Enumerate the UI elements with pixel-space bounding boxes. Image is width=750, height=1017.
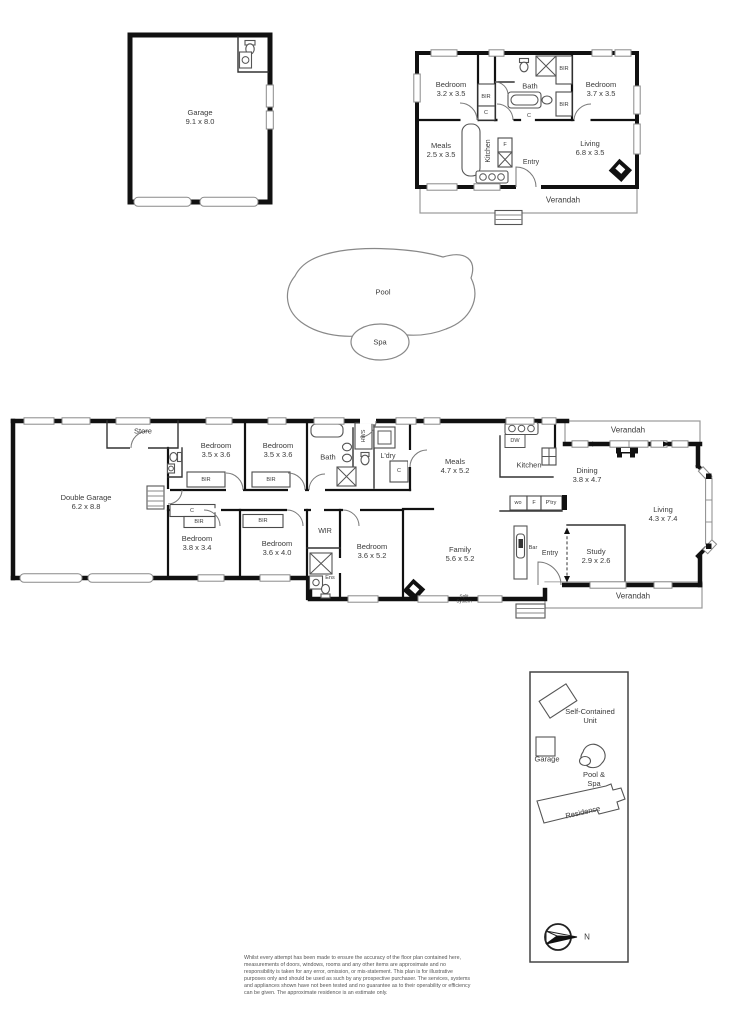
wir-label: WIR xyxy=(318,528,332,536)
room-dims: 9.1 x 8.0 xyxy=(186,118,215,127)
bedroom2-label: Bedroom 3.5 x 3.6 xyxy=(263,442,293,460)
room-dims: 6.2 x 8.8 xyxy=(61,503,112,512)
room-dims: 5.6 x 5.2 xyxy=(446,555,475,564)
hws-label: HWS xyxy=(360,430,366,443)
unit-meals-label: Meals 2.5 x 3.5 xyxy=(427,142,456,160)
fridge-label: F xyxy=(532,500,535,506)
bathtub-icon xyxy=(508,92,541,108)
entry-label: Entry xyxy=(542,550,558,558)
room-dims: 3.7 x 3.5 xyxy=(586,90,616,99)
unit-verandah xyxy=(420,187,637,213)
bar-label: Bar xyxy=(529,545,538,551)
toilet-icon xyxy=(321,594,330,598)
meals-label: Meals 4.7 x 5.2 xyxy=(441,458,470,476)
pool-label: Pool xyxy=(375,289,390,298)
unit-bedroom2-label: Bedroom 3.7 x 3.5 xyxy=(586,81,616,99)
residence-plan xyxy=(13,418,717,618)
ensuite-label: Ens xyxy=(325,575,334,581)
bedroom1-label: Bedroom 3.5 x 3.6 xyxy=(201,442,231,460)
basin-icon xyxy=(343,443,352,451)
room-dims: 2.5 x 3.5 xyxy=(427,151,456,160)
garage-door xyxy=(134,197,191,206)
laundry-label: L'dry xyxy=(381,453,396,461)
study-label: Study 2.9 x 2.6 xyxy=(582,548,611,566)
verandah-top-label: Verandah xyxy=(611,425,645,434)
split-system-label: Split System xyxy=(455,594,473,605)
unit-entry-label: Entry xyxy=(523,159,539,167)
bath-label: Bath xyxy=(320,454,335,463)
laundry-trough xyxy=(374,427,395,448)
key-garage-label: Garage xyxy=(534,756,559,765)
bathtub-icon xyxy=(311,424,343,437)
basin-icon xyxy=(240,52,252,68)
fireplace-icon xyxy=(616,446,638,458)
unit-bir-label: BIR xyxy=(559,102,568,108)
family-label: Family 5.6 x 5.2 xyxy=(446,546,475,564)
basin-icon xyxy=(343,454,352,462)
verandah-bottom-label: Verandah xyxy=(616,591,650,600)
bir-label: BIR xyxy=(201,476,210,482)
room-dims: 3.8 x 3.4 xyxy=(182,544,212,553)
room-dims: 4.3 x 7.4 xyxy=(649,515,678,524)
unit-bir-label: BIR xyxy=(559,66,568,72)
unit-verandah-label: Verandah xyxy=(546,195,580,204)
unit-living-label: Living 6.8 x 3.5 xyxy=(576,140,605,158)
room-dims: 3.2 x 3.5 xyxy=(436,90,466,99)
kitchen-bench xyxy=(462,124,480,176)
unit-fridge-label: F xyxy=(503,142,506,148)
pantry-label: P'try xyxy=(546,500,557,506)
key-pool-label: Pool & Spa xyxy=(578,771,610,789)
unit-kitchen-label: Kitchen xyxy=(485,139,493,162)
unit-plan xyxy=(414,50,640,225)
bedroom5-label: Bedroom 3.6 x 5.2 xyxy=(357,543,387,561)
room-dims: 3.6 x 5.2 xyxy=(357,552,387,561)
stove-icon xyxy=(476,171,508,183)
closet-label: C xyxy=(397,468,401,474)
toilet-icon xyxy=(178,453,182,462)
unit-bedroom1-label: Bedroom 3.2 x 3.5 xyxy=(436,81,466,99)
room-dims: 2.9 x 2.6 xyxy=(582,557,611,566)
disclaimer-text: Whilst every attempt has been made to en… xyxy=(244,955,476,997)
key-garage-shape xyxy=(536,737,555,756)
unit-closet-label: C xyxy=(527,113,531,119)
floor-plan-page: Garage 9.1 x 8.0 Bedroom 3.2 x 3.5 Bedro… xyxy=(0,0,750,1017)
room-dims: 3.5 x 3.6 xyxy=(201,451,231,460)
unit-bir-label: BIR xyxy=(481,94,490,100)
living-label: Living 4.3 x 7.4 xyxy=(649,506,678,524)
kitchen-label: Kitchen xyxy=(516,462,541,471)
bir-label: BIR xyxy=(258,518,267,524)
store-label: Store xyxy=(134,428,152,437)
double-garage-label: Double Garage 6.2 x 8.8 xyxy=(61,494,112,512)
room-dims: 3.6 x 4.0 xyxy=(262,549,292,558)
closet-label: C xyxy=(190,507,194,513)
dishwasher-label: DW xyxy=(510,438,519,444)
steps-icon xyxy=(495,211,522,225)
bedroom3-label: Bedroom 3.8 x 3.4 xyxy=(182,535,212,553)
bir-label: BIR xyxy=(194,519,203,525)
bir-label: BIR xyxy=(266,476,275,482)
north-label: N xyxy=(584,932,590,941)
steps-icon xyxy=(516,604,545,618)
unit-bath-label: Bath xyxy=(522,83,537,92)
room-dims: 3.8 x 4.7 xyxy=(573,476,602,485)
garage-door xyxy=(20,574,82,583)
garage-door xyxy=(200,197,258,206)
bedroom4-label: Bedroom 3.6 x 4.0 xyxy=(262,540,292,558)
basin-icon xyxy=(310,576,323,589)
floor-plan-drawing xyxy=(0,0,750,1017)
wall-oven-label: wo xyxy=(514,500,521,506)
garage-door xyxy=(88,574,153,583)
spa-label: Spa xyxy=(373,339,386,348)
room-dims: 3.5 x 3.6 xyxy=(263,451,293,460)
dining-label: Dining 3.8 x 4.7 xyxy=(573,467,602,485)
bar-sink-icon xyxy=(519,539,524,548)
room-dims: 4.7 x 5.2 xyxy=(441,467,470,476)
garage-building-label: Garage 9.1 x 8.0 xyxy=(186,109,215,127)
unit-closet-label: C xyxy=(484,110,488,116)
basin-icon xyxy=(542,96,552,104)
room-dims: 6.8 x 3.5 xyxy=(576,149,605,158)
key-unit-label: Self-Contained Unit xyxy=(561,708,619,726)
